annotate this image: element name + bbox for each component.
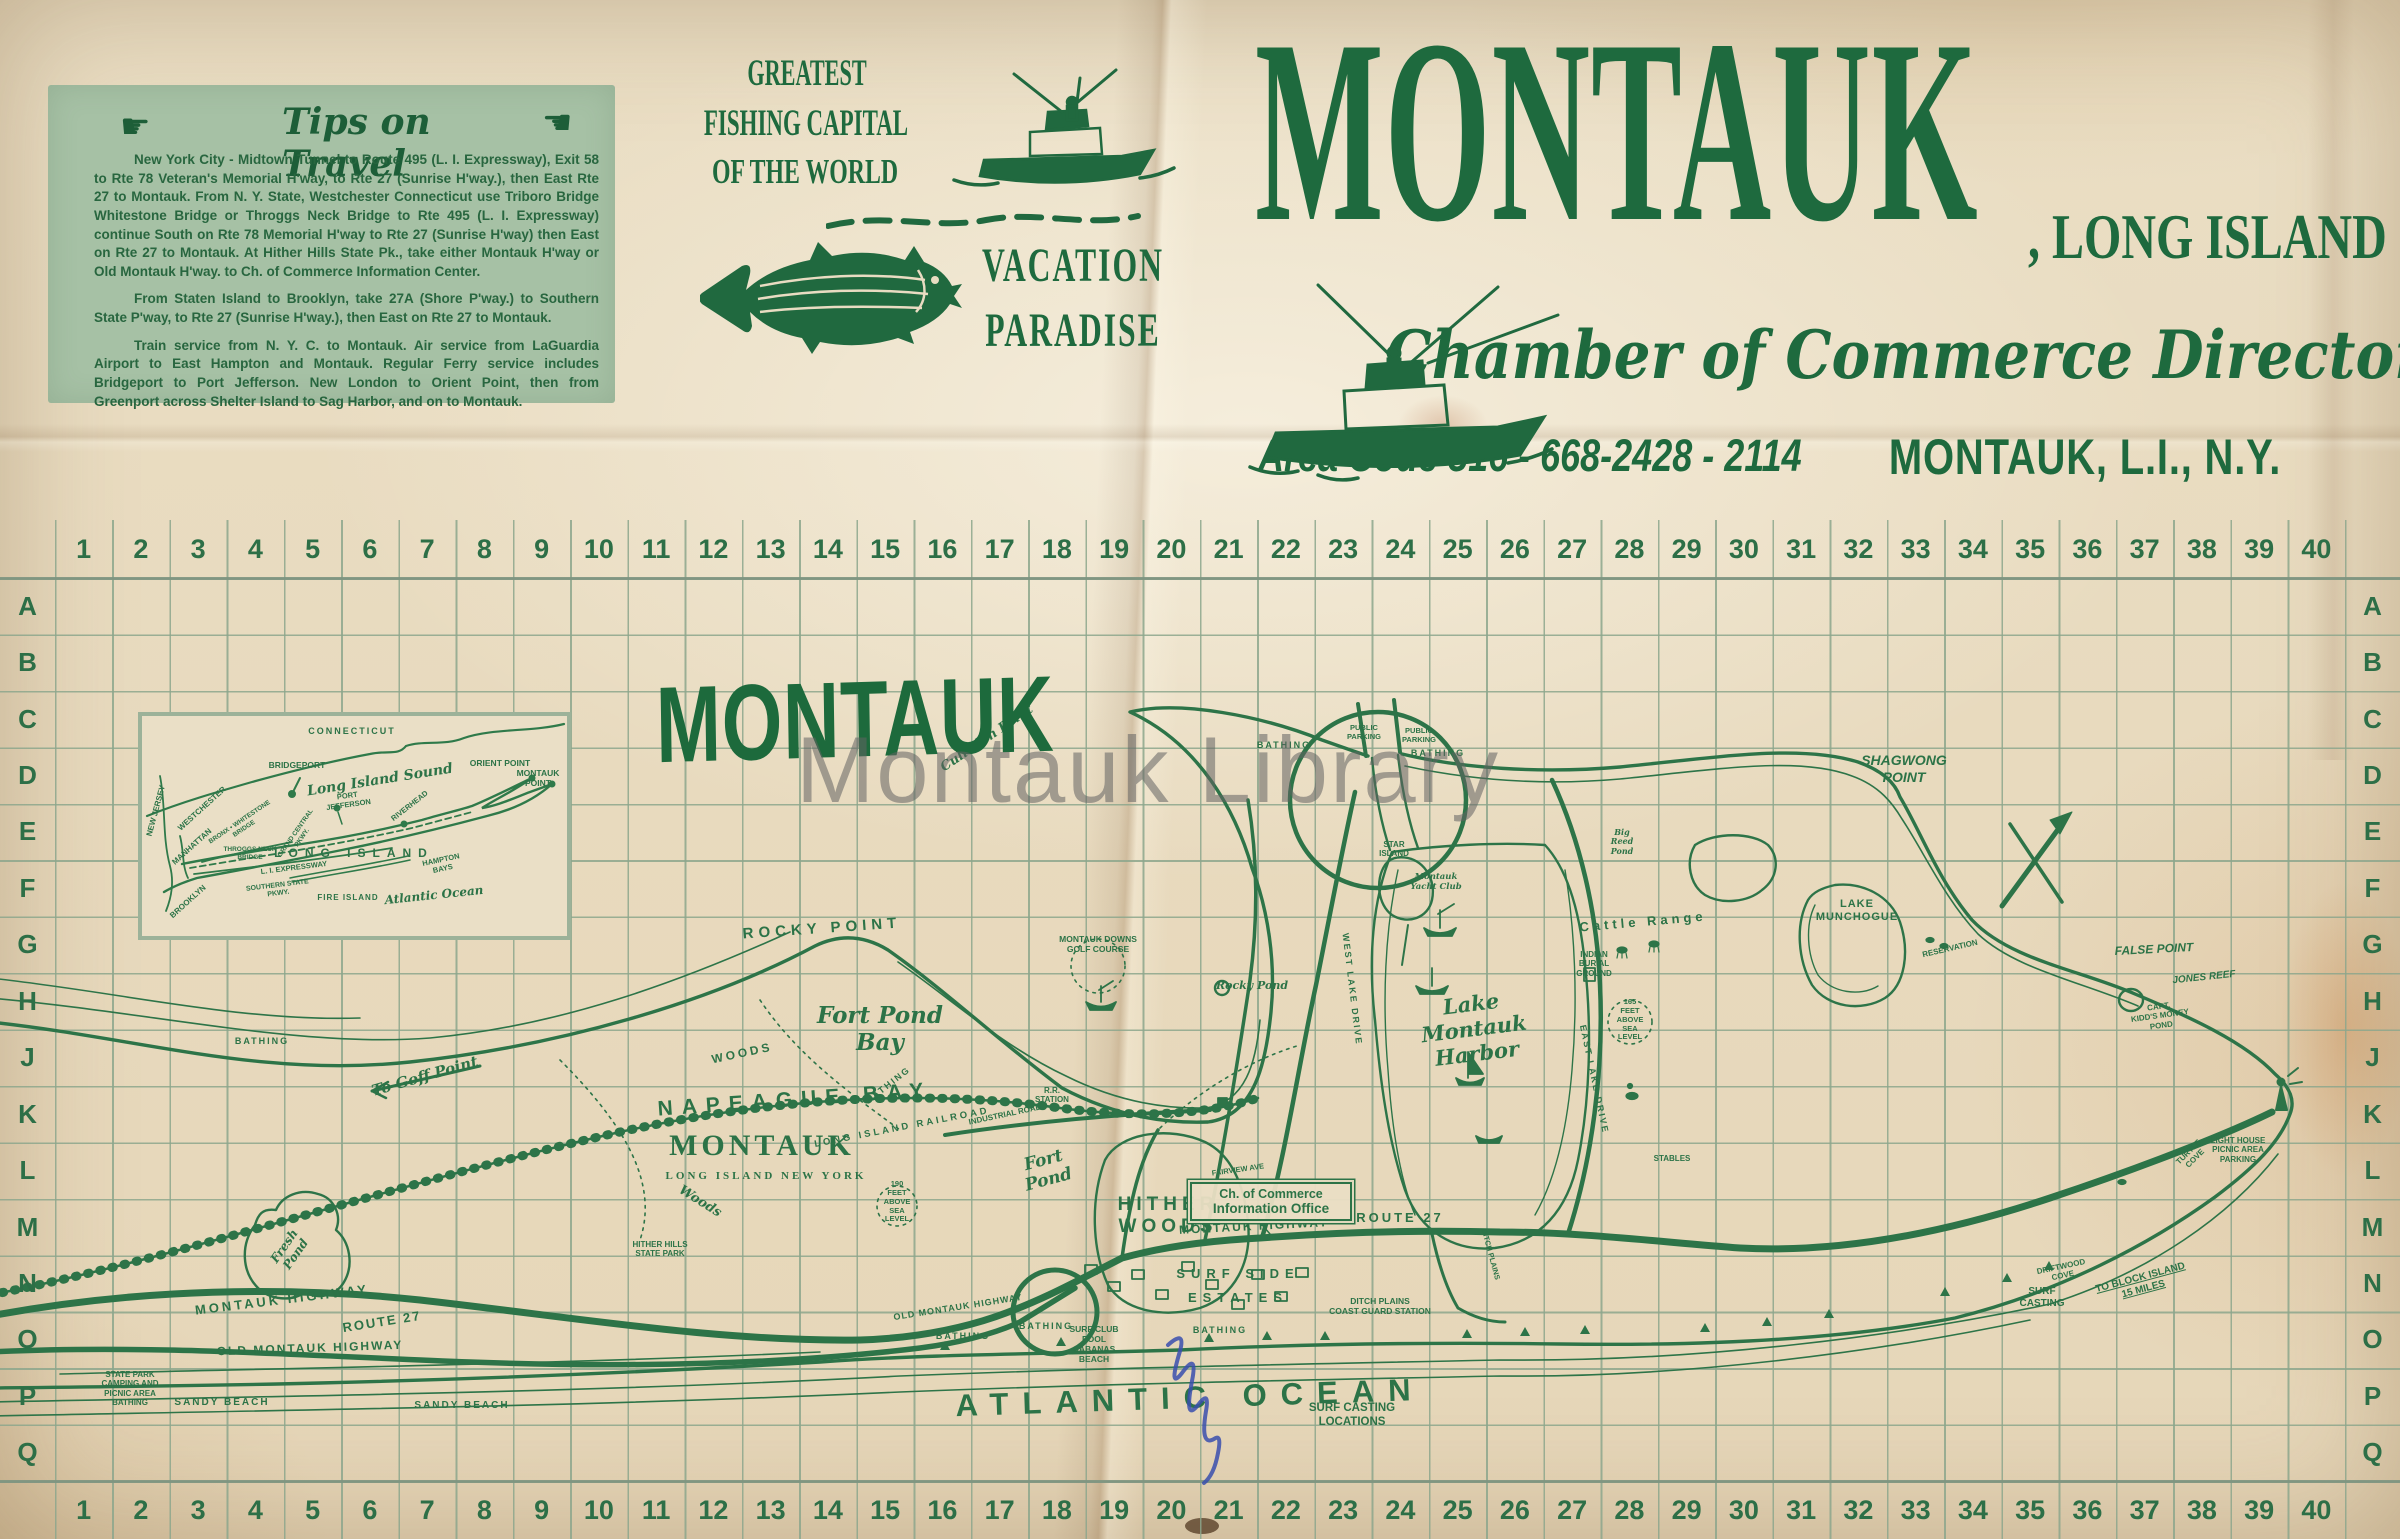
grid-column-label: 12	[685, 534, 742, 565]
map-label: JONES REEF	[2172, 969, 2236, 987]
map-label: WEST LAKE DRIVE	[1340, 933, 1364, 1046]
grid-column-label: 20	[1143, 534, 1200, 565]
grid-row-label: O	[0, 1312, 55, 1368]
grid-row-label: J	[0, 1030, 55, 1086]
map-label: Woods	[676, 1183, 724, 1221]
grid-row-label: B	[0, 634, 55, 690]
grid-column-label: 25	[1429, 1495, 1486, 1526]
map-label: MONTAUK DOWNS GOLF COURSE	[1059, 934, 1137, 954]
map-label: SHAGWONG POINT	[1861, 752, 1947, 785]
grid-column-label: 21	[1200, 1495, 1257, 1526]
grid-column-label: 3	[170, 1495, 227, 1526]
grid-column-label: 31	[1773, 534, 1830, 565]
map-label: MONTAUK	[669, 1128, 855, 1163]
grid-column-label: 30	[1715, 534, 1772, 565]
grid-row-label: P	[2345, 1368, 2400, 1424]
grid-column-label: 14	[799, 534, 856, 565]
map-label: INDIAN BURIAL GROUND	[1576, 950, 1612, 978]
grid-row-label: K	[2345, 1086, 2400, 1142]
grid-column-label: 29	[1658, 534, 1715, 565]
grid-row-label: A	[0, 578, 55, 634]
grid-column-label: 16	[914, 1495, 971, 1526]
map-label: LIGHT HOUSE PICNIC AREA PARKING	[2211, 1136, 2266, 1164]
map-label: Lake Montauk Harbor	[1417, 986, 1531, 1073]
grid-column-label: 6	[341, 534, 398, 565]
grid-column-label: 18	[1028, 534, 1085, 565]
grid-row-label: F	[2345, 860, 2400, 916]
map-label: SURF CLUB POOL CABANAS BEACH	[1069, 1324, 1118, 1364]
grid-column-label: 17	[971, 1495, 1028, 1526]
grid-column-label: 4	[227, 534, 284, 565]
grid-column-label: 13	[742, 534, 799, 565]
map-label: DRIFTWOOD COVE	[2036, 1257, 2088, 1286]
grid-column-label: 11	[628, 534, 685, 565]
grid-column-label: 37	[2116, 534, 2173, 565]
grid-column-label: 40	[2288, 534, 2345, 565]
grid-column-label: 33	[1887, 1495, 1944, 1526]
grid-column-label: 21	[1200, 534, 1257, 565]
map-label: OLD MONTAUK HIGHWAY	[216, 1338, 403, 1359]
grid-column-label: 27	[1544, 1495, 1601, 1526]
grid-column-label: 1	[55, 1495, 112, 1526]
grid-column-label: 25	[1429, 534, 1486, 565]
map-label: EAST LAKE DRIVE	[1577, 1024, 1610, 1135]
grid-row-label: J	[2345, 1030, 2400, 1086]
map-label: To Goff Point	[370, 1053, 480, 1100]
map-label: Big Reed Pond	[1611, 828, 1634, 856]
grid-row-label: Q	[2345, 1425, 2400, 1481]
grid-row-label: Q	[0, 1425, 55, 1481]
grid-column-label: 2	[112, 534, 169, 565]
map-label: FAIRVIEW AVE	[1211, 1162, 1265, 1178]
grid-row-label: N	[0, 1255, 55, 1311]
map-label: CAPT. KIDD'S MONEY POND	[2129, 998, 2191, 1034]
grid-column-label: 7	[399, 1495, 456, 1526]
grid-column-label: 32	[1830, 1495, 1887, 1526]
map-label: 165 FEET ABOVE SEA LEVEL	[1617, 998, 1644, 1042]
library-watermark: Montauk Library	[796, 716, 1500, 824]
grid-column-label: 38	[2173, 534, 2230, 565]
map-label: HITHER HILLS STATE PARK	[632, 1240, 687, 1259]
grid-row-label: L	[0, 1142, 55, 1198]
grid-column-label: 15	[857, 1495, 914, 1526]
grid-column-label: 9	[513, 534, 570, 565]
map-label: Fort Pond Bay	[817, 1002, 943, 1056]
grid-column-label: 34	[1944, 534, 2001, 565]
grid-column-label: 13	[742, 1495, 799, 1526]
map-label: Fort Pond	[1018, 1144, 1075, 1195]
grid-column-label: 36	[2059, 534, 2116, 565]
grid-column-label: 32	[1830, 534, 1887, 565]
grid-column-label: 27	[1544, 534, 1601, 565]
grid-row-label: C	[0, 691, 55, 747]
grid-column-label: 7	[399, 534, 456, 565]
map-label: LONG ISLAND NEW YORK	[666, 1170, 867, 1183]
grid-column-label: 22	[1257, 1495, 1314, 1526]
map-label: STABLES	[1654, 1154, 1691, 1163]
grid-column-label: 17	[971, 534, 1028, 565]
grid-row-label: E	[2345, 804, 2400, 860]
grid-column-label: 33	[1887, 534, 1944, 565]
grid-column-label: 12	[685, 1495, 742, 1526]
grid-row-label: N	[2345, 1255, 2400, 1311]
grid-column-label: 5	[284, 534, 341, 565]
grid-column-label: 3	[170, 534, 227, 565]
grid-column-label: 30	[1715, 1495, 1772, 1526]
grid-column-label: 23	[1315, 534, 1372, 565]
grid-row-label: L	[2345, 1142, 2400, 1198]
grid-column-label: 38	[2173, 1495, 2230, 1526]
grid-column-label: 39	[2231, 534, 2288, 565]
grid-row-label: M	[2345, 1199, 2400, 1255]
map-label: DITCH PLAINS COAST GUARD STATION	[1329, 1296, 1431, 1316]
grid-row-label: O	[2345, 1312, 2400, 1368]
map-label: TO BLOCK ISLAND 15 MILES	[2094, 1260, 2189, 1307]
map-label: Rocky Pond	[1216, 980, 1288, 993]
grid-column-label: 19	[1086, 534, 1143, 565]
chamber-office-box: Ch. of Commerce Information Office	[1190, 1182, 1352, 1221]
map-label: 190 FEET ABOVE SEA LEVEL	[884, 1180, 911, 1224]
map-label: SURF CASTING	[2020, 1286, 2065, 1310]
brochure-map-sheet: ☛ Tips on Travel ☚ New York City - Midto…	[0, 0, 2400, 1539]
map-label: SANDY BEACH	[414, 1400, 509, 1412]
grid-column-label: 5	[284, 1495, 341, 1526]
grid-column-label: 24	[1372, 1495, 1429, 1526]
map-label: LAKE MUNCHOGUE	[1816, 898, 1898, 924]
grid-row-label: C	[2345, 691, 2400, 747]
map-label: BATHING	[235, 1036, 289, 1047]
grid-column-label: 14	[799, 1495, 856, 1526]
map-label: BATHING	[936, 1331, 990, 1342]
map-label: Cattle Range	[1579, 908, 1707, 934]
grid-row-label: B	[2345, 634, 2400, 690]
map-label: Fresh Pond	[268, 1227, 313, 1274]
grid-column-label: 29	[1658, 1495, 1715, 1526]
row-letters-right: ABCDEFGHJKLMNOPQ	[2345, 578, 2400, 1481]
map-label: ESTATES	[1188, 1290, 1288, 1305]
grid-column-label: 35	[2002, 534, 2059, 565]
grid-column-label: 4	[227, 1495, 284, 1526]
grid-column-label: 28	[1601, 534, 1658, 565]
grid-column-label: 16	[914, 534, 971, 565]
map-label: BATHING	[1193, 1325, 1247, 1336]
column-numbers-top: 1234567891011121314151617181920212223242…	[55, 520, 2345, 578]
map-label: SURF CASTING LOCATIONS	[1309, 1402, 1395, 1429]
grid-column-label: 10	[570, 534, 627, 565]
map-label: ROUTE 27	[342, 1308, 423, 1336]
map-label: ROCKY POINT	[742, 914, 902, 943]
grid-column-label: 8	[456, 1495, 513, 1526]
grid-row-label: F	[0, 860, 55, 916]
grid-column-label: 26	[1486, 1495, 1543, 1526]
map-label: WOODS	[710, 1040, 773, 1067]
grid-column-label: 31	[1773, 1495, 1830, 1526]
map-label: SURF SIDE	[1176, 1266, 1299, 1281]
grid-column-label: 15	[857, 534, 914, 565]
grid-column-label: 1	[55, 534, 112, 565]
grid-column-label: 11	[628, 1495, 685, 1526]
map-label: RESERVATION	[1921, 938, 1978, 960]
grid-column-label: 20	[1143, 1495, 1200, 1526]
map-label: Montauk Yacht Club	[1410, 872, 1461, 892]
grid-row-label: D	[2345, 747, 2400, 803]
map-label: ROUTE 27	[1356, 1210, 1444, 1225]
grid-column-label: 26	[1486, 534, 1543, 565]
grid-column-label: 36	[2059, 1495, 2116, 1526]
column-numbers-bottom: 1234567891011121314151617181920212223242…	[55, 1481, 2345, 1539]
map-label: FALSE POINT	[2114, 940, 2193, 958]
map-label: STATE PARK CAMPING AND PICNIC AREA BATHI…	[101, 1370, 158, 1408]
map-label: STAR ISLAND	[1379, 840, 1409, 859]
grid-row-label: E	[0, 804, 55, 860]
grid-row-label: H	[2345, 973, 2400, 1029]
grid-row-label: G	[0, 917, 55, 973]
map-label: DITCH PLAINS	[1479, 1228, 1501, 1281]
map-label: TURTLE COVE	[2174, 1138, 2210, 1174]
grid-row-label: A	[2345, 578, 2400, 634]
map-label: BATHING	[1019, 1321, 1073, 1332]
row-letters-left: ABCDEFGHJKLMNOPQ	[0, 578, 55, 1481]
grid-column-label: 37	[2116, 1495, 2173, 1526]
grid-row-label: H	[0, 973, 55, 1029]
grid-column-label: 24	[1372, 534, 1429, 565]
grid-row-label: G	[2345, 917, 2400, 973]
grid-row-label: M	[0, 1199, 55, 1255]
office-line-1: Ch. of Commerce	[1196, 1187, 1346, 1201]
grid-column-label: 40	[2288, 1495, 2345, 1526]
grid-row-label: P	[0, 1368, 55, 1424]
grid-column-label: 35	[2002, 1495, 2059, 1526]
map-label: SANDY BEACH	[174, 1397, 269, 1409]
grid-column-label: 9	[513, 1495, 570, 1526]
grid-row-label: K	[0, 1086, 55, 1142]
grid-column-label: 19	[1086, 1495, 1143, 1526]
grid-column-label: 6	[341, 1495, 398, 1526]
grid-row-label: D	[0, 747, 55, 803]
office-line-2: Information Office	[1196, 1201, 1346, 1216]
map-label: OLD MONTAUK HIGHWAY	[893, 1292, 1024, 1323]
grid-column-label: 18	[1028, 1495, 1085, 1526]
grid-column-label: 23	[1315, 1495, 1372, 1526]
map-label: MONTAUK HIGHWAY	[194, 1281, 370, 1318]
grid-column-label: 8	[456, 534, 513, 565]
grid-column-label: 10	[570, 1495, 627, 1526]
grid-column-label: 2	[112, 1495, 169, 1526]
grid-column-label: 22	[1257, 534, 1314, 565]
grid-column-label: 28	[1601, 1495, 1658, 1526]
grid-column-label: 34	[1944, 1495, 2001, 1526]
grid-column-label: 39	[2231, 1495, 2288, 1526]
